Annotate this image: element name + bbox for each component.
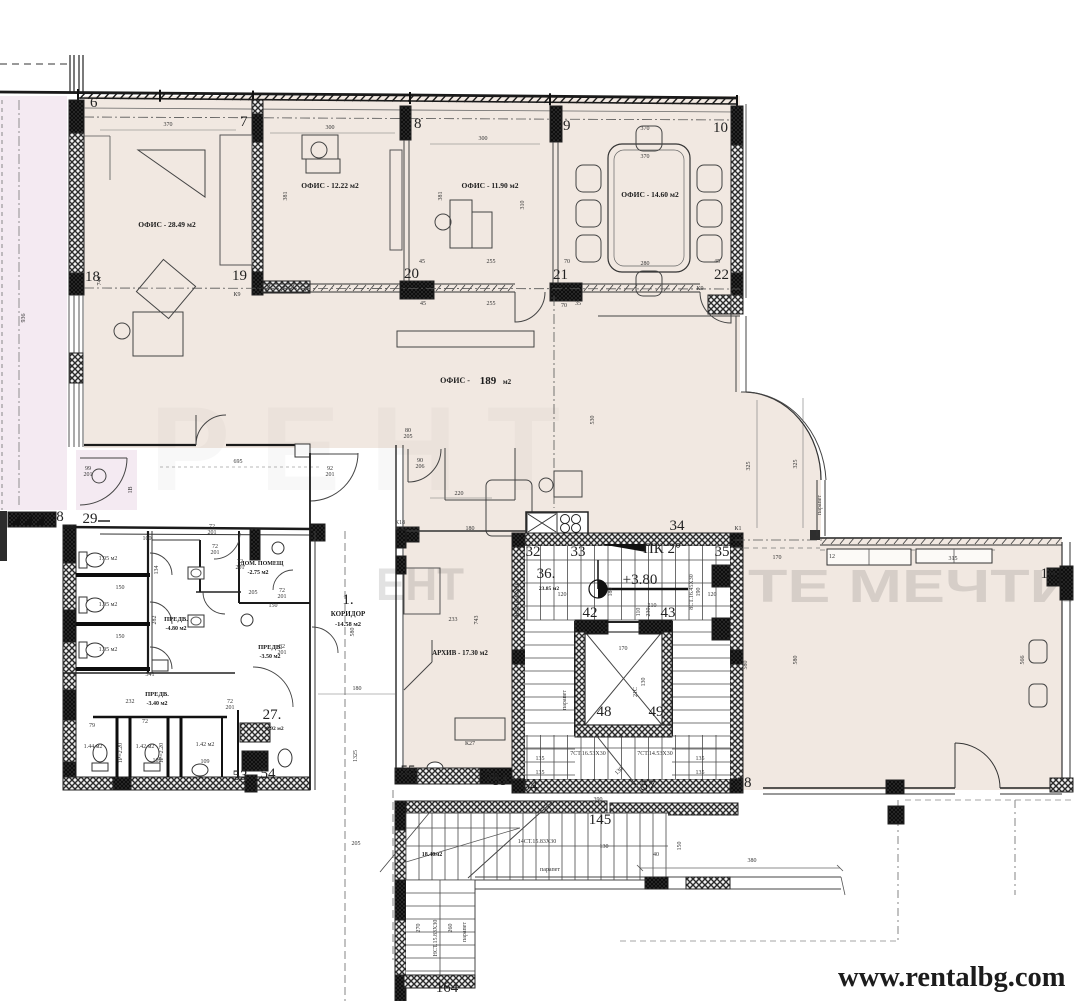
svg-text:8: 8: [414, 116, 422, 132]
svg-text:8СТ.16.45X30: 8СТ.16.45X30: [689, 574, 695, 609]
svg-text:109: 109: [201, 759, 210, 765]
svg-text:1.42 м2: 1.42 м2: [196, 742, 215, 748]
svg-text:49: 49: [649, 704, 664, 720]
svg-text:ТЕ МЕЧТИ: ТЕ МЕЧТИ: [748, 560, 1076, 612]
svg-text:34: 34: [670, 518, 686, 534]
svg-text:135: 135: [696, 770, 705, 776]
svg-text:48: 48: [597, 704, 612, 720]
svg-text:370: 370: [641, 154, 650, 160]
svg-text:10: 10: [713, 120, 728, 136]
svg-text:-4.80 м2: -4.80 м2: [165, 626, 186, 632]
svg-text:201: 201: [208, 530, 217, 536]
svg-text:ОФИС - 11.90 м2: ОФИС - 11.90 м2: [461, 181, 518, 190]
svg-text:135: 135: [696, 756, 705, 762]
svg-text:парапет: парапет: [562, 690, 568, 710]
svg-text:ОФИС - 28.49 м2: ОФИС - 28.49 м2: [138, 220, 196, 229]
svg-text:57: 57: [641, 778, 657, 794]
svg-text:150: 150: [116, 634, 125, 640]
svg-text:29: 29: [83, 511, 98, 527]
svg-text:150: 150: [677, 842, 683, 851]
svg-text:70: 70: [561, 303, 567, 309]
svg-text:744: 744: [97, 277, 103, 286]
svg-text:1325: 1325: [353, 750, 359, 762]
svg-text:201: 201: [226, 705, 235, 711]
svg-text:40: 40: [653, 852, 659, 858]
svg-text:18.40м2: 18.40м2: [422, 852, 443, 858]
svg-text:201: 201: [84, 472, 93, 478]
svg-text:К1: К1: [734, 526, 741, 532]
svg-text:580: 580: [743, 661, 749, 670]
svg-text:205: 205: [352, 841, 361, 847]
svg-text:НСТ.15.83X30: НСТ.15.83X30: [433, 920, 439, 957]
svg-text:1Р=2.20: 1Р=2.20: [159, 743, 165, 763]
svg-text:14СТ.15.83X30: 14СТ.15.83X30: [518, 839, 556, 845]
svg-text:7: 7: [240, 114, 248, 130]
svg-text:282: 282: [152, 616, 158, 625]
svg-text:120: 120: [558, 592, 567, 598]
svg-text:381: 381: [283, 192, 289, 201]
svg-text:19: 19: [232, 268, 247, 284]
svg-text:ОФИС - 12.22 м2: ОФИС - 12.22 м2: [301, 181, 359, 190]
svg-text:164: 164: [436, 980, 459, 996]
svg-text:79: 79: [89, 723, 95, 729]
svg-text:54: 54: [261, 766, 277, 782]
svg-text:325: 325: [793, 460, 799, 469]
svg-text:К27: К27: [465, 741, 475, 747]
svg-text:К9: К9: [233, 292, 240, 298]
svg-text:АРХИВ - 17.30 м2: АРХИВ - 17.30 м2: [432, 649, 488, 657]
svg-text:9: 9: [563, 118, 571, 134]
svg-text:233: 233: [449, 617, 458, 623]
svg-text:70: 70: [564, 259, 570, 265]
svg-text:45: 45: [420, 301, 426, 307]
svg-text:110: 110: [636, 608, 642, 617]
svg-text:201: 201: [211, 550, 220, 556]
svg-text:201: 201: [236, 565, 245, 571]
svg-text:www.rentalbg.com: www.rentalbg.com: [838, 962, 1066, 993]
svg-text:72: 72: [142, 719, 148, 725]
svg-text:530: 530: [590, 416, 596, 425]
svg-text:310: 310: [520, 201, 526, 210]
svg-text:390: 390: [594, 797, 603, 803]
svg-text:150: 150: [116, 585, 125, 591]
svg-text:-3.40 м2: -3.40 м2: [146, 701, 167, 707]
svg-text:130: 130: [641, 678, 647, 687]
svg-text:-14.58 м2: -14.58 м2: [335, 621, 361, 628]
svg-text:232: 232: [126, 699, 135, 705]
svg-text:парапет: парапет: [462, 922, 468, 942]
svg-text:ДОМ. ПОМЕЩ: ДОМ. ПОМЕЩ: [240, 561, 283, 567]
svg-text:27.: 27.: [263, 707, 282, 723]
svg-text:120: 120: [708, 592, 717, 598]
svg-text:205: 205: [249, 590, 258, 596]
svg-text:42: 42: [583, 605, 598, 621]
svg-text:ЕНТ: ЕНТ: [376, 559, 464, 610]
svg-text:36.: 36.: [537, 566, 556, 582]
svg-text:1Р=2.20: 1Р=2.20: [118, 743, 124, 763]
svg-text:130: 130: [600, 844, 609, 850]
svg-text:936: 936: [21, 314, 27, 323]
svg-text:1.05 м2: 1.05 м2: [99, 556, 118, 562]
svg-text:325: 325: [746, 462, 752, 471]
svg-text:180: 180: [353, 686, 362, 692]
svg-text:КОРИДОР: КОРИДОР: [331, 610, 366, 618]
svg-text:21С: 21С: [633, 687, 639, 697]
svg-text:43: 43: [661, 605, 676, 621]
svg-text:566: 566: [1020, 656, 1026, 665]
svg-text:7СТ.16.53X30: 7СТ.16.53X30: [570, 751, 605, 757]
svg-text:54: 54: [523, 778, 539, 794]
svg-text:7СТ.14.53X30: 7СТ.14.53X30: [637, 751, 672, 757]
svg-text:201: 201: [278, 650, 287, 656]
svg-text:300: 300: [326, 125, 335, 131]
svg-text:1.05 м2: 1.05 м2: [99, 602, 118, 608]
svg-text:8: 8: [56, 509, 64, 525]
svg-text:255: 255: [487, 259, 496, 265]
svg-text:1В: 1В: [128, 486, 134, 493]
svg-text:743: 743: [474, 616, 480, 625]
svg-text:33: 33: [571, 544, 586, 560]
svg-text:380: 380: [748, 858, 757, 864]
svg-text:180: 180: [466, 526, 475, 532]
svg-text:+3.80: +3.80: [623, 572, 658, 588]
svg-text:53: 53: [233, 768, 248, 784]
svg-text:55: 55: [401, 763, 416, 779]
svg-text:1.05 м2: 1.05 м2: [99, 647, 118, 653]
svg-text:21: 21: [553, 267, 568, 283]
svg-text:381: 381: [438, 192, 444, 201]
svg-text:150: 150: [269, 603, 278, 609]
svg-text:23.85 м2: 23.85 м2: [539, 586, 559, 592]
svg-text:270: 270: [416, 924, 422, 933]
svg-text:45: 45: [419, 259, 425, 265]
svg-text:8СТ.16.45X30: 8СТ.16.45X30: [515, 582, 521, 617]
svg-text:1.42 м2: 1.42 м2: [136, 744, 155, 750]
svg-text:35: 35: [715, 544, 730, 560]
svg-text:100: 100: [143, 536, 152, 542]
svg-text:300: 300: [479, 136, 488, 142]
svg-text:255: 255: [487, 301, 496, 307]
svg-text:1.: 1.: [342, 592, 353, 608]
svg-text:К9: К9: [696, 286, 703, 292]
svg-text:22: 22: [714, 267, 729, 283]
svg-text:180: 180: [608, 588, 614, 597]
svg-text:20: 20: [404, 266, 419, 282]
svg-text:парапет: парапет: [540, 867, 560, 873]
svg-text:35: 35: [575, 301, 581, 307]
svg-text:370: 370: [641, 126, 650, 132]
svg-text:1.44 м2: 1.44 м2: [84, 744, 103, 750]
svg-text:580: 580: [793, 656, 799, 665]
svg-text:580: 580: [350, 628, 356, 637]
svg-text:230: 230: [646, 608, 652, 617]
svg-text:32: 32: [526, 544, 541, 560]
svg-text:58: 58: [737, 775, 752, 791]
svg-text:170: 170: [619, 646, 628, 652]
svg-text:53: 53: [493, 773, 508, 789]
svg-text:135: 135: [536, 756, 545, 762]
svg-text:ПРЕДВ.: ПРЕДВ.: [145, 691, 169, 698]
svg-text:135: 135: [536, 770, 545, 776]
svg-text:-0.92 м2: -0.92 м2: [264, 726, 284, 732]
svg-text:-2.75 м2: -2.75 м2: [247, 570, 268, 576]
svg-text:341: 341: [146, 672, 155, 678]
svg-text:РЕНТ: РЕНТ: [150, 382, 590, 516]
svg-text:370: 370: [164, 122, 173, 128]
svg-text:ПРЕДВ.: ПРЕДВ.: [164, 616, 188, 623]
svg-text:ПК 2°: ПК 2°: [643, 541, 681, 557]
svg-text:ОФИС - 14.60 м2: ОФИС - 14.60 м2: [621, 190, 679, 199]
svg-text:6: 6: [90, 95, 98, 111]
svg-text:201: 201: [278, 594, 287, 600]
svg-text:парапет: парапет: [817, 495, 823, 515]
svg-text:134: 134: [154, 566, 160, 575]
svg-text:190: 190: [696, 588, 702, 597]
svg-text:145: 145: [589, 812, 612, 828]
svg-text:260: 260: [448, 924, 454, 933]
